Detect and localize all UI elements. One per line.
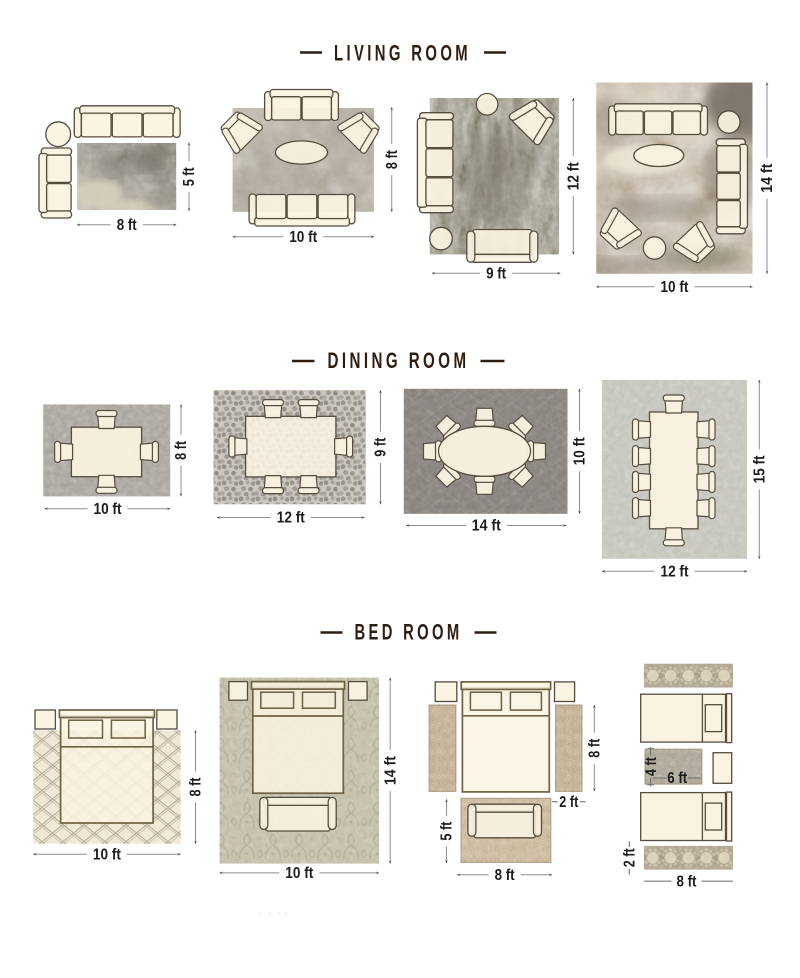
svg-text:10 ft: 10 ft bbox=[94, 501, 122, 518]
svg-text:2 ft: 2 ft bbox=[559, 794, 578, 811]
svg-text:10 ft: 10 ft bbox=[285, 865, 313, 882]
svg-text:6 ft: 6 ft bbox=[667, 770, 687, 787]
svg-text:8 ft: 8 ft bbox=[677, 873, 697, 890]
svg-text:14 ft: 14 ft bbox=[759, 164, 776, 193]
svg-text:BED ROOM: BED ROOM bbox=[355, 620, 463, 645]
svg-text:DINING ROOM: DINING ROOM bbox=[328, 348, 470, 373]
svg-text:9 ft: 9 ft bbox=[486, 265, 506, 282]
svg-text:8 ft: 8 ft bbox=[384, 150, 401, 169]
svg-text:14 ft: 14 ft bbox=[472, 518, 501, 535]
svg-text:12 ft: 12 ft bbox=[566, 162, 583, 190]
svg-text:8 ft: 8 ft bbox=[188, 778, 205, 797]
svg-text:15 ft: 15 ft bbox=[752, 455, 769, 483]
svg-text:2 ft: 2 ft bbox=[622, 848, 639, 867]
svg-text:8 ft: 8 ft bbox=[587, 739, 604, 758]
svg-text:14 ft: 14 ft bbox=[382, 756, 399, 785]
svg-text:12 ft: 12 ft bbox=[277, 510, 305, 527]
svg-text:LIVING ROOM: LIVING ROOM bbox=[334, 41, 471, 66]
svg-text:9 ft: 9 ft bbox=[373, 438, 390, 457]
svg-text:5 ft: 5 ft bbox=[439, 822, 456, 841]
svg-text:10 ft: 10 ft bbox=[660, 279, 688, 296]
svg-text:10 ft: 10 ft bbox=[289, 229, 317, 246]
svg-text:8 ft: 8 ft bbox=[117, 217, 137, 234]
svg-text:5 ft: 5 ft bbox=[181, 167, 198, 186]
svg-text:10 ft: 10 ft bbox=[572, 437, 589, 465]
svg-text:8 ft: 8 ft bbox=[495, 867, 515, 884]
svg-text:10 ft: 10 ft bbox=[93, 846, 121, 863]
svg-text:8 ft: 8 ft bbox=[173, 441, 190, 460]
svg-text:12 ft: 12 ft bbox=[661, 564, 689, 581]
